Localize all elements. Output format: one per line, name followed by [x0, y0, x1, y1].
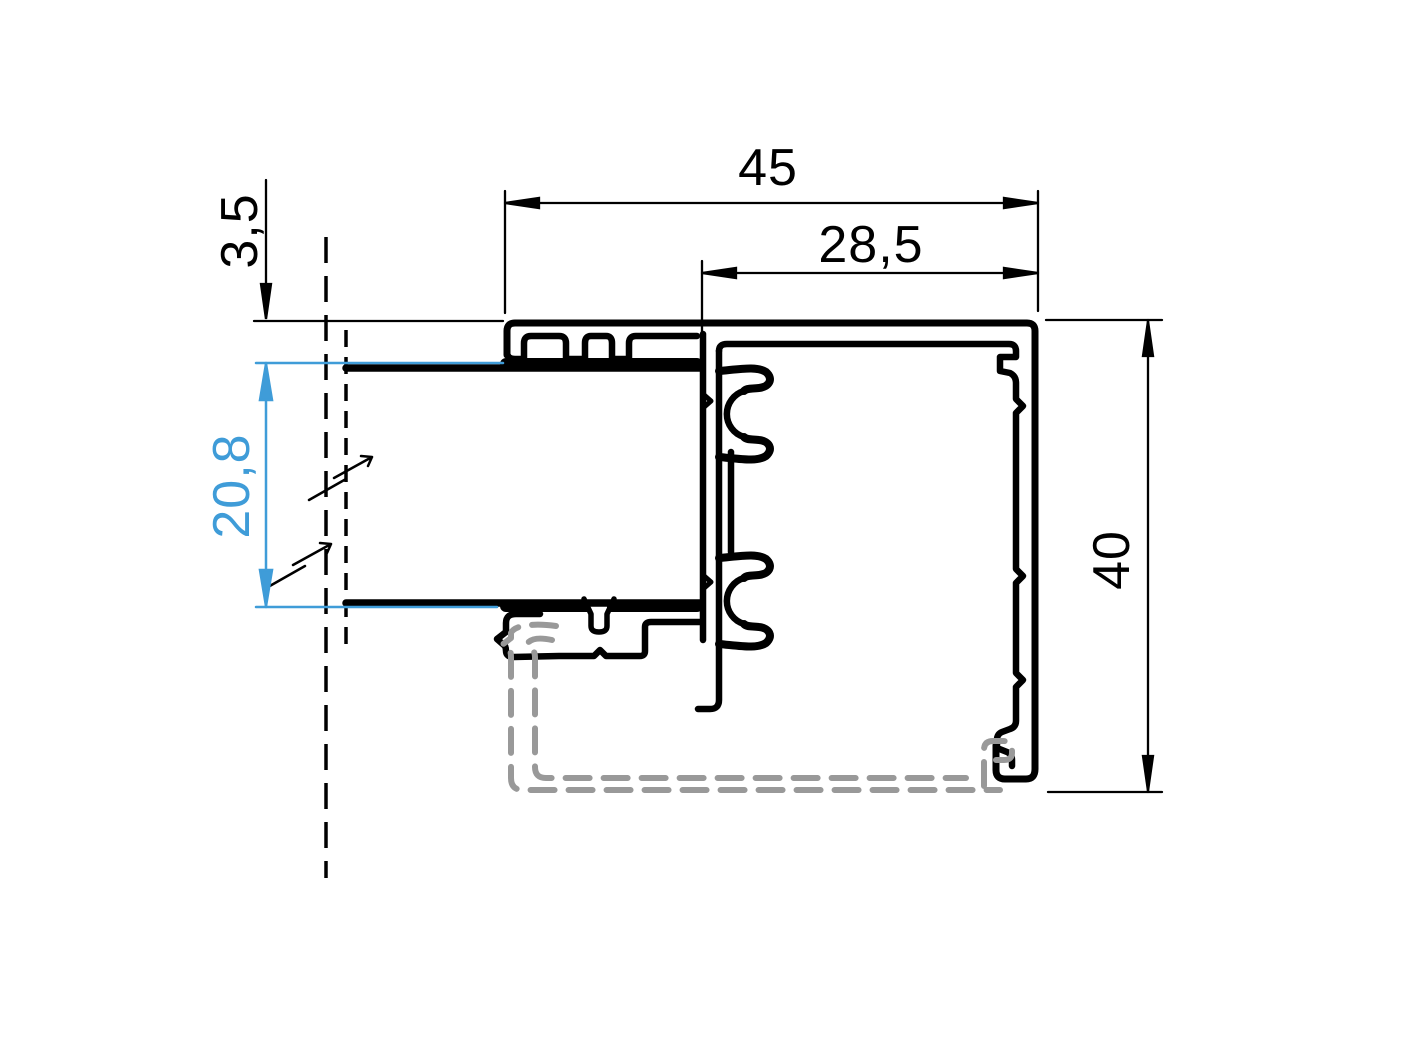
arrowhead-right: [1004, 198, 1038, 208]
bead-inner-contour: [527, 639, 966, 778]
dim-label-glass-thickness: 20,8: [206, 433, 258, 538]
dimension-total-width: [505, 191, 1038, 313]
glass-break-marks: [268, 456, 372, 587]
arrowhead-right: [1004, 268, 1038, 278]
arrowhead-up: [260, 364, 272, 400]
dim-label-sash-width: 28,5: [818, 219, 923, 271]
break-mark-upper: [309, 456, 372, 500]
arrowhead-down: [1143, 756, 1153, 791]
dimension-glass-thickness: [256, 363, 503, 607]
frame-profile-outline: [497, 323, 1035, 779]
bottom-flange: [497, 614, 700, 657]
arrowhead-down: [260, 570, 272, 606]
arrowhead-left: [505, 198, 539, 208]
technical-drawing-canvas: 45 28,5 3,5 20,8 40: [0, 0, 1413, 1058]
gasket-clip-lower: [719, 555, 770, 646]
gasket-clip-upper: [719, 368, 770, 459]
top-flange-ribs: [507, 336, 697, 359]
glass-pane-lines: [346, 368, 700, 603]
break-mark-lower: [268, 543, 331, 587]
dim-label-frame-height: 40: [1086, 530, 1138, 590]
arrowhead-up: [1143, 321, 1153, 356]
dim-label-edge-gap: 3,5: [214, 193, 266, 268]
dim-label-total-width: 45: [738, 142, 798, 194]
dimension-edge-gap: [254, 180, 503, 321]
dashed-lines: [326, 237, 346, 878]
profile-outer-contour: [507, 323, 1035, 779]
arrowhead-left: [702, 268, 736, 278]
arrowhead-down: [261, 284, 271, 319]
